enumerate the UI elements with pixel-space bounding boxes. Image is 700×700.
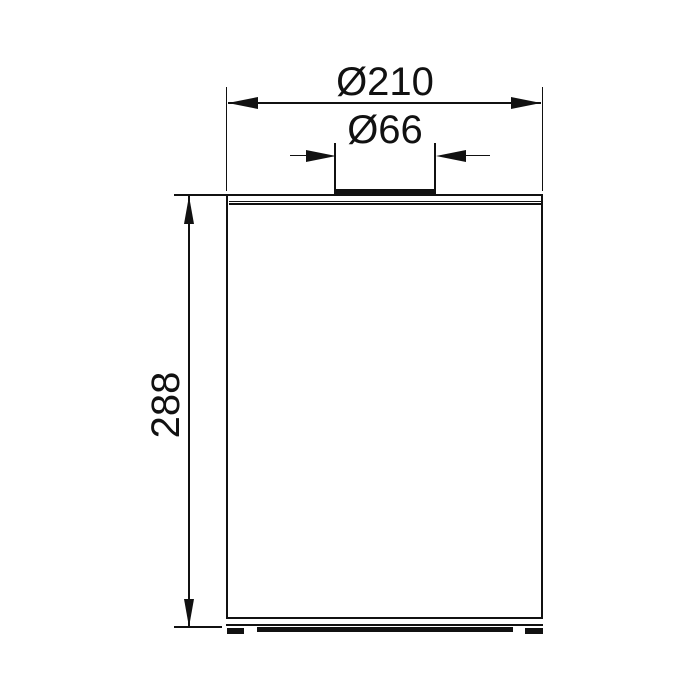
- technical-drawing-canvas: Ø210 Ø66 288: [0, 0, 700, 700]
- bin-body-outline: [226, 194, 543, 619]
- arrowhead-up-icon: [184, 196, 194, 224]
- base-rim-line: [226, 624, 543, 626]
- base-strip: [257, 627, 513, 632]
- arrowhead-inward-right-icon: [306, 150, 336, 162]
- lid-seam-line-2: [229, 203, 541, 204]
- arrowhead-left-icon: [228, 97, 258, 109]
- arrowhead-inward-left-icon: [436, 150, 466, 162]
- lid-seam-line-1: [229, 201, 541, 203]
- foot-left: [227, 628, 245, 635]
- outer-diameter-extension-line-right: [542, 87, 543, 191]
- foot-right: [525, 628, 543, 635]
- height-dimension-line: [188, 196, 189, 626]
- height-extension-tick-bottom: [174, 626, 222, 627]
- opening-diameter-label: Ø66: [285, 110, 485, 151]
- arrowhead-down-icon: [184, 599, 194, 627]
- arrowhead-right-icon: [511, 97, 541, 109]
- height-extension-tick-top: [174, 194, 227, 195]
- lid-opening-collar: [335, 189, 435, 195]
- height-label: 288: [146, 345, 186, 465]
- outer-diameter-label: Ø210: [285, 62, 485, 103]
